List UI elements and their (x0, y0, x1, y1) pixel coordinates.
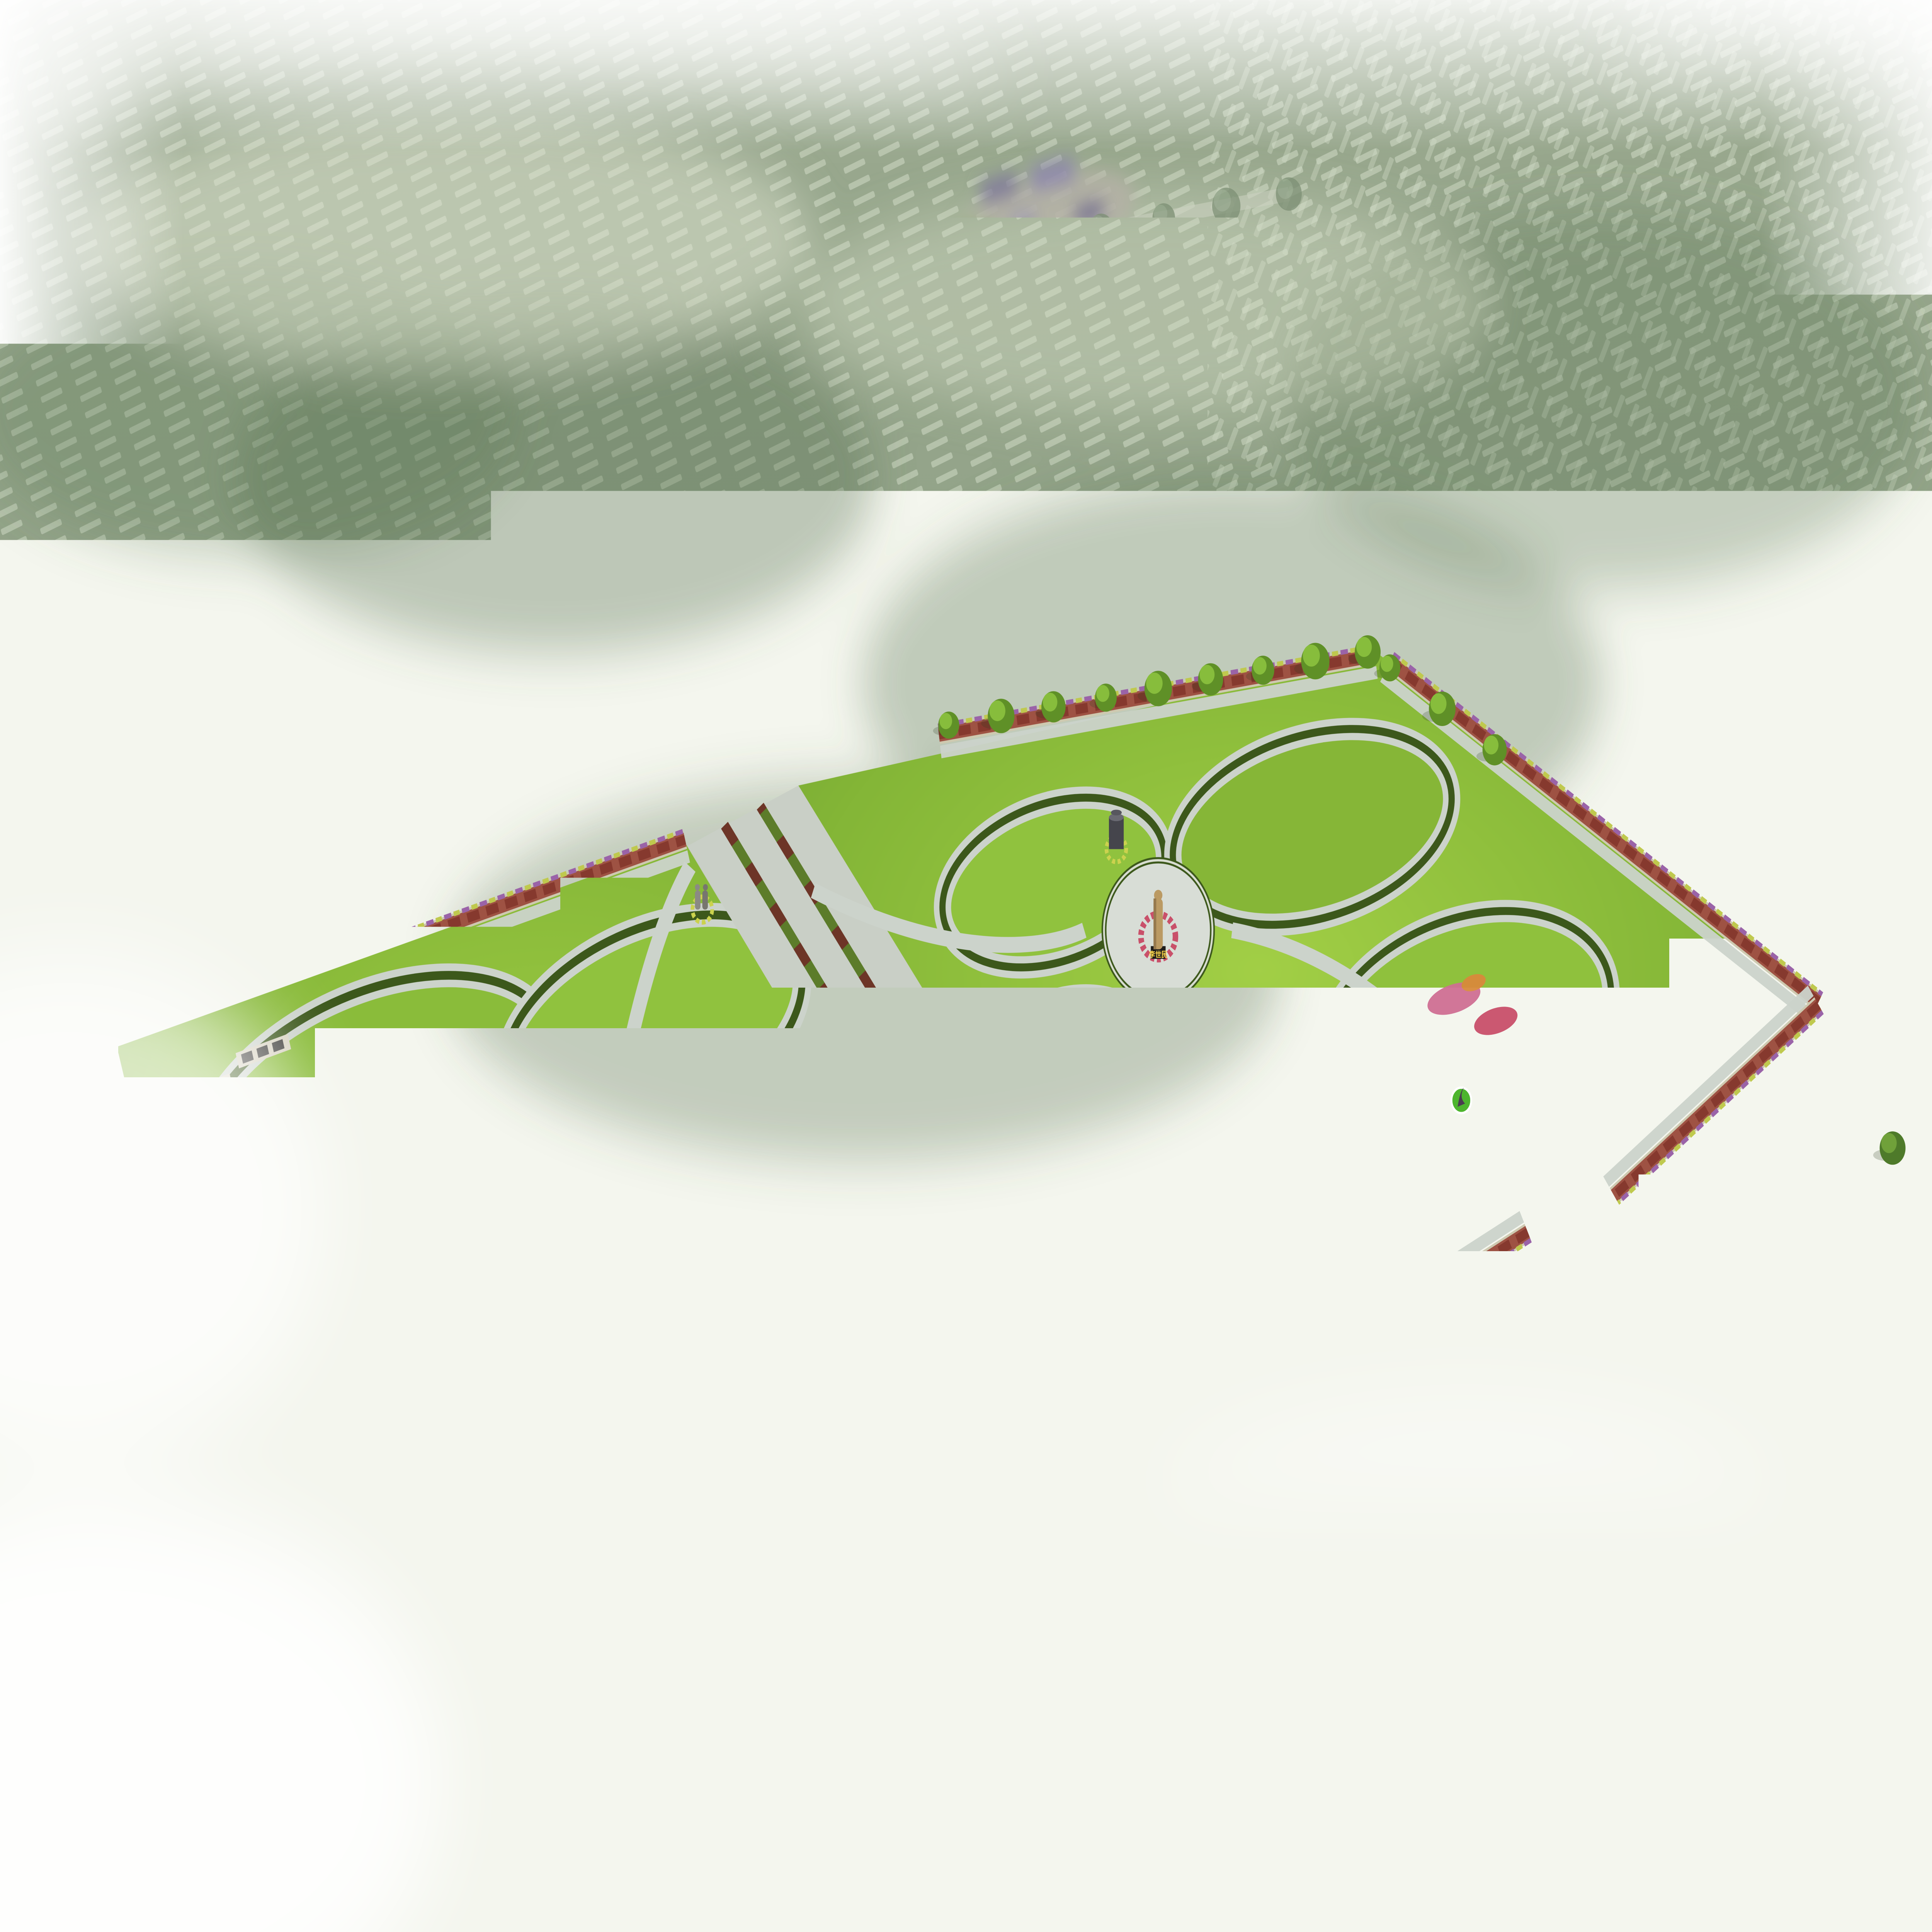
row-tree (998, 457, 1027, 494)
lishimin-plaza: 李世民 (1104, 860, 1213, 1000)
row-tree (646, 644, 675, 682)
row-tree (300, 480, 333, 523)
row-tree (1386, 323, 1415, 361)
row-tree (1329, 306, 1352, 336)
row-tree (444, 750, 476, 790)
row-tree (1153, 203, 1175, 232)
row-tree (946, 482, 978, 522)
row-tree (697, 619, 724, 653)
row-tree (965, 240, 987, 268)
rendering-stage: 武则天 (0, 0, 1932, 1932)
row-tree (294, 831, 324, 870)
row-tree (1478, 536, 1502, 568)
statue-plaque: 武则天 (592, 1304, 610, 1313)
row-tree (496, 725, 524, 762)
row-tree (900, 513, 924, 545)
row-tree (346, 806, 373, 841)
page-title: 太原龙山人文纪念园规划鸟瞰图 (27, 56, 1027, 162)
row-tree (548, 700, 573, 733)
row-tree (1627, 409, 1655, 444)
row-tree (1212, 188, 1240, 224)
birds-eye-rendering: 武则天 (0, 0, 1932, 1932)
row-tree (901, 250, 926, 281)
row-tree (796, 563, 827, 602)
row-tree (1298, 295, 1328, 334)
row-tree (1423, 583, 1449, 617)
row-tree (1101, 407, 1124, 437)
row-tree (1200, 351, 1226, 386)
row-tree (1583, 437, 1611, 473)
row-tree (1532, 489, 1554, 517)
row-tree (1566, 386, 1596, 425)
row-tree (1509, 369, 1533, 400)
row-tree (247, 862, 271, 893)
row-tree (1089, 214, 1114, 246)
row-tree (1251, 326, 1275, 357)
lishimin-statue (1153, 890, 1163, 949)
dancing-sculpture (1451, 1088, 1471, 1113)
row-tree (749, 594, 773, 625)
row-tree (778, 276, 799, 303)
row-tree (397, 781, 422, 813)
row-tree (838, 260, 864, 295)
row-tree (1689, 432, 1713, 464)
wuzetian-plaza: 武则天 (551, 1225, 649, 1352)
row-tree (1049, 432, 1075, 465)
row-tree (848, 538, 875, 573)
row-tree (1148, 376, 1177, 414)
row-tree (1025, 224, 1053, 260)
row-tree (1447, 346, 1474, 381)
row-tree (1276, 177, 1302, 211)
title-block: 太原龙山人文纪念园规划鸟瞰图 (27, 56, 1027, 162)
row-tree (599, 675, 622, 704)
